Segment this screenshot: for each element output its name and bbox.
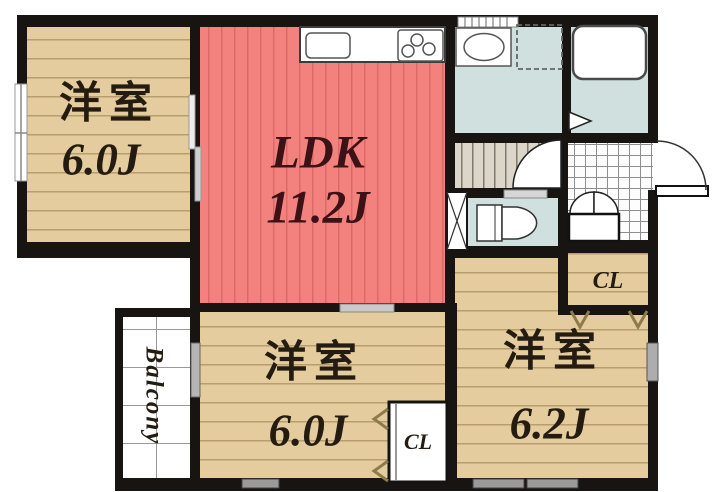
- front-door: [656, 141, 708, 196]
- vanity-sink: [456, 28, 511, 66]
- sliding-door: [195, 147, 201, 201]
- bedroom-s-area: 6.0J: [269, 409, 348, 454]
- door-arrow: [374, 409, 388, 429]
- toilet: [477, 205, 537, 241]
- doorway: [504, 190, 547, 198]
- window: [527, 479, 578, 488]
- wall-segment: [648, 190, 658, 490]
- bedroom-nw-label: 洋室: [59, 83, 159, 126]
- ldk-area: 11.2J: [266, 185, 369, 232]
- gas-stove: [398, 30, 443, 61]
- pipe-space: [447, 192, 467, 250]
- wall-segment: [445, 15, 455, 312]
- bedroom-nw-area: 6.0J: [62, 138, 141, 183]
- shoe-cabinet: [569, 192, 619, 241]
- window: [647, 343, 658, 381]
- wall-segment: [190, 303, 457, 312]
- floorplan: 洋室 6.0J LDK 11.2J 洋室 6.0J 洋室 6.2J CL CL …: [0, 0, 720, 492]
- ldk-label: LDK: [271, 130, 365, 177]
- wall-segment: [17, 242, 197, 258]
- window: [242, 479, 279, 488]
- louver-window: [458, 17, 518, 27]
- bathroom-door-arrow: [569, 112, 591, 130]
- bedroom-s-label: 洋室: [264, 342, 364, 385]
- washing-machine-space: [517, 25, 562, 69]
- bathtub: [573, 26, 646, 79]
- wall-segment: [648, 15, 658, 143]
- sliding-door: [189, 95, 195, 149]
- wall-segment: [190, 15, 200, 490]
- stairs-door-swing: [513, 140, 561, 188]
- window: [473, 479, 524, 488]
- window: [191, 343, 200, 397]
- kitchen-sink: [306, 33, 350, 58]
- doorway: [340, 304, 394, 312]
- wall-segment: [115, 308, 195, 317]
- closet-entry-label: CL: [593, 269, 624, 293]
- balcony-label: Balcony: [142, 347, 167, 446]
- plan-linework: [0, 0, 720, 492]
- bedroom-se-area: 6.2J: [510, 402, 589, 447]
- bedroom-se-label: 洋室: [503, 331, 603, 374]
- closet-south-label: CL: [404, 431, 432, 453]
- wall-segment: [115, 308, 123, 490]
